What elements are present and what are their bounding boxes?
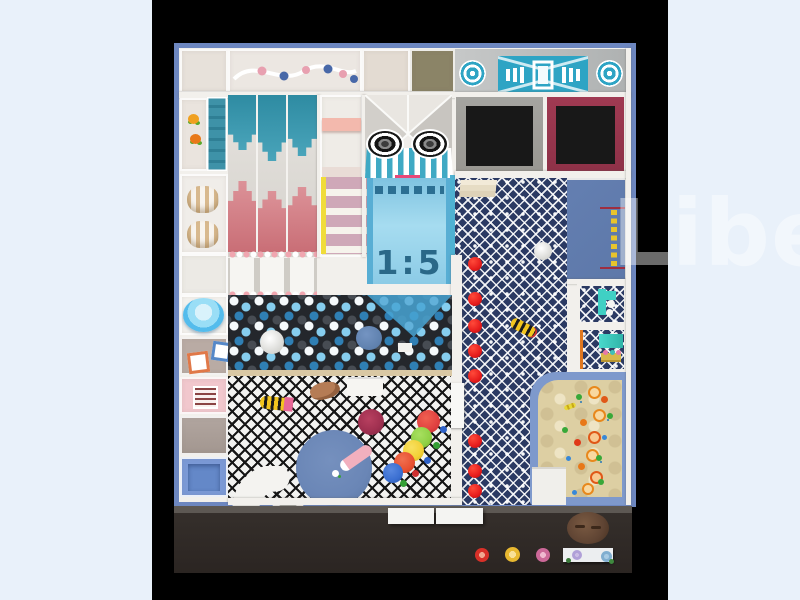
wave-slide-teal-lane: [287, 95, 317, 156]
sand-toy-roller: [564, 402, 577, 411]
caterpillar-segment: [383, 463, 403, 483]
top-cell-2: [362, 49, 410, 93]
flower-toy-icon: [190, 134, 201, 144]
ladder-cell: [320, 95, 363, 257]
wave-slide-teal-lane: [257, 95, 287, 161]
leaf-icon: [609, 559, 614, 564]
wave-slide-pink-lane: [257, 191, 287, 252]
runout-lane: [230, 258, 254, 295]
sand-toy-ring: [593, 409, 606, 422]
blue-mat-cell: [180, 457, 228, 497]
play-room-1: [577, 283, 627, 325]
top-cell-1: [180, 49, 228, 93]
toy-cell: [180, 98, 208, 171]
caterpillar-foot: [440, 426, 447, 433]
sand-toy-ring: [588, 431, 601, 444]
toy-dot: [616, 350, 621, 355]
play-room-2: [577, 327, 627, 372]
wave-slide-teal-lane: [228, 95, 257, 150]
wave-slide-pink-lane: [287, 187, 317, 252]
teal-table: [599, 334, 623, 348]
white-ball: [534, 242, 552, 260]
runout-lane: [260, 258, 284, 295]
slide-slope: 1:5: [367, 178, 452, 284]
caterpillar-foot: [400, 480, 407, 487]
sand-toy: [574, 439, 581, 446]
plant-shelf: [563, 548, 613, 562]
corridor-wall: [451, 255, 462, 505]
beige-steps: [459, 180, 497, 197]
pink-panel-cell: [180, 377, 228, 414]
toy-dot: [610, 350, 615, 355]
red-step-dot: [468, 369, 482, 383]
bead-maze-cell: [228, 49, 362, 93]
empty-cell: [180, 254, 228, 295]
top-cell-olive: [410, 49, 455, 93]
sand-pit-steps: [532, 467, 566, 505]
trampoline-gray: [456, 97, 543, 173]
wall-door-panel: [449, 383, 464, 428]
ball-pit: [228, 295, 452, 372]
wall-horizontal-bottom: [228, 498, 462, 505]
spinning-bowl-cell: [180, 295, 228, 335]
speaker-circle-left-icon: [459, 60, 486, 87]
speaker-circle-right-icon: [596, 60, 623, 87]
pink-shelf: [322, 118, 361, 131]
sand-toy: [602, 435, 607, 440]
bead-edge-row: [229, 251, 317, 258]
teal-bench: [598, 289, 606, 315]
sand-toy: [566, 456, 571, 461]
blue-mat-inner: [188, 464, 220, 491]
slope-dash-row: [375, 186, 444, 194]
face-eye-left-icon: [368, 131, 402, 157]
sand-toy-pin: [562, 427, 568, 433]
lane-divider: [256, 95, 258, 252]
playground-render: 1:5: [0, 0, 800, 600]
lane-divider: [286, 95, 288, 252]
toy-bench: [601, 353, 621, 362]
maroon-pouf: [358, 409, 384, 435]
sand-toy-pin: [596, 455, 602, 461]
caterpillar-foot: [433, 442, 440, 449]
white-ball-small: [607, 300, 615, 308]
sand-toy-ring: [588, 386, 601, 399]
red-step-dot: [468, 434, 482, 448]
runout-lane: [290, 258, 314, 295]
sand-toy-pin: [598, 479, 604, 485]
entrance-strip: [174, 506, 632, 573]
taupe-cell: [180, 416, 228, 455]
teal-stairs: [207, 97, 227, 171]
white-block: [398, 343, 412, 352]
caterpillar-foot: [412, 470, 419, 477]
slope-ratio-sign: 1:5: [367, 243, 452, 282]
red-step-dot: [468, 344, 482, 358]
sand-toy: [601, 396, 608, 403]
slide-runout: [228, 258, 317, 295]
bead-maze-track: [228, 49, 362, 93]
teal-bench-seat: [606, 291, 616, 300]
sand-toy-pin: [607, 413, 613, 419]
white-ball-small: [606, 309, 613, 316]
ottoman-seam: [575, 525, 585, 528]
stool-red: [475, 548, 489, 562]
orange-square-frame: [187, 351, 210, 374]
sand-toy-ring: [582, 483, 594, 495]
stool-pink: [536, 548, 550, 562]
red-step-dot: [468, 484, 482, 498]
tan-rocker-toy: [308, 378, 341, 402]
orange-edge-strip: [580, 330, 583, 369]
spinning-bowl: [183, 298, 224, 332]
white-cabinet: [388, 508, 434, 524]
red-step-dot: [468, 292, 482, 306]
red-step-dot: [468, 257, 482, 271]
striped-roller: [187, 221, 219, 248]
toddler-area-floor: [228, 376, 451, 498]
sand-toy-pin: [576, 394, 582, 400]
mini-caterpillar-toy: [259, 395, 293, 411]
mini-caterpillar-head: [283, 397, 293, 412]
roller-cell: [180, 174, 228, 254]
face-eye-right-icon: [413, 131, 447, 157]
flower-toy-icon: [188, 114, 199, 124]
trampoline-mat: [466, 106, 533, 166]
wave-slides: [228, 95, 317, 257]
wall-horizontal: [455, 171, 631, 178]
brown-ottoman: [567, 512, 609, 544]
light-shelf: [322, 167, 361, 177]
wave-slide-pink-lane: [228, 181, 257, 252]
ottoman-seam: [591, 526, 601, 529]
red-step-dot: [468, 464, 482, 478]
playground-room-frame: 1:5: [174, 43, 636, 507]
trampoline-maroon: [547, 97, 624, 171]
toy-dot: [603, 350, 608, 355]
big-white-ball: [260, 330, 284, 354]
lavender-plant-icon: [572, 550, 582, 560]
sand-toy: [578, 463, 585, 470]
flower-bit: [332, 470, 339, 477]
white-cabinet: [436, 508, 483, 524]
stage-doorway-graphic: [498, 56, 588, 94]
striped-roller: [187, 186, 219, 213]
caterpillar-foot: [424, 457, 431, 464]
sand-toy: [580, 419, 587, 426]
frame-toys-cell: [180, 337, 228, 375]
white-step-box: [347, 377, 383, 396]
stage-doorway: [498, 56, 588, 94]
leaf-icon: [566, 558, 571, 563]
watermark-text: Libe: [612, 180, 800, 287]
sand-toy: [572, 490, 577, 495]
trampoline-mat: [556, 106, 615, 164]
red-step-dot: [468, 319, 482, 333]
activity-panel: [193, 386, 218, 409]
stool-yellow: [505, 547, 520, 562]
blue-beanbag: [356, 326, 382, 350]
